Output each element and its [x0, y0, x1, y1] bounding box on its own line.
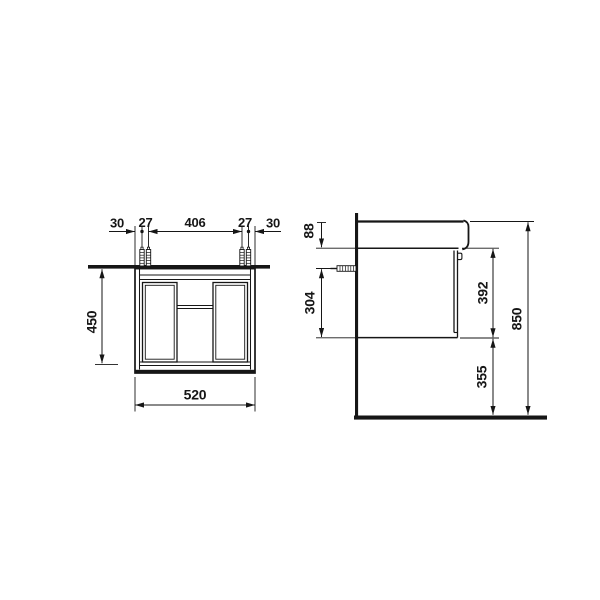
mounting-screw-icon: [140, 247, 144, 266]
dim-point-27-right: [247, 230, 250, 233]
wall-line: [355, 213, 358, 420]
drawing-page: 30 27 406 27 30 450 520: [0, 0, 600, 600]
cabinet-bottom-edge: [135, 370, 255, 373]
floor-line: [354, 416, 547, 420]
drawer-handle-notch: [458, 253, 462, 259]
mounting-screw-icon: [246, 247, 250, 266]
technical-drawing: 30 27 406 27 30 450 520: [0, 0, 600, 600]
dim-label-392: 392: [475, 281, 491, 304]
cabinet-side: [358, 251, 462, 338]
front-view: 30 27 406 27 30 450 520: [84, 215, 282, 412]
mounting-screw-icon: [240, 247, 244, 266]
dim-label-406: 406: [184, 215, 205, 230]
mounting-screw-icon: [146, 247, 150, 266]
dim-label-30-left: 30: [110, 216, 124, 231]
right-door-panel-inner: [216, 285, 245, 359]
right-door-panel: [213, 283, 248, 363]
dim-label-520: 520: [184, 387, 207, 403]
left-door-panel: [143, 283, 178, 363]
dim-label-88: 88: [301, 223, 317, 239]
fixing-screws-front: [140, 247, 251, 266]
washbasin-profile: [358, 220, 469, 249]
dim-label-450: 450: [84, 310, 100, 333]
dim-label-27-left: 27: [138, 215, 152, 230]
cabinet-front: [135, 269, 255, 373]
dim-label-30-right: 30: [266, 216, 280, 231]
dim-label-27-right: 27: [238, 215, 252, 230]
mounting-screw-side: [331, 266, 357, 272]
side-extension-lines: [316, 222, 534, 339]
dim-point-27-left: [140, 230, 143, 233]
dim-label-304: 304: [302, 291, 318, 314]
side-view: 88 304 392 355 850: [301, 213, 548, 420]
left-door-panel-inner: [145, 285, 174, 359]
dim-label-355: 355: [474, 365, 490, 388]
side-dimensions: [317, 222, 528, 415]
dim-label-850: 850: [509, 307, 525, 330]
